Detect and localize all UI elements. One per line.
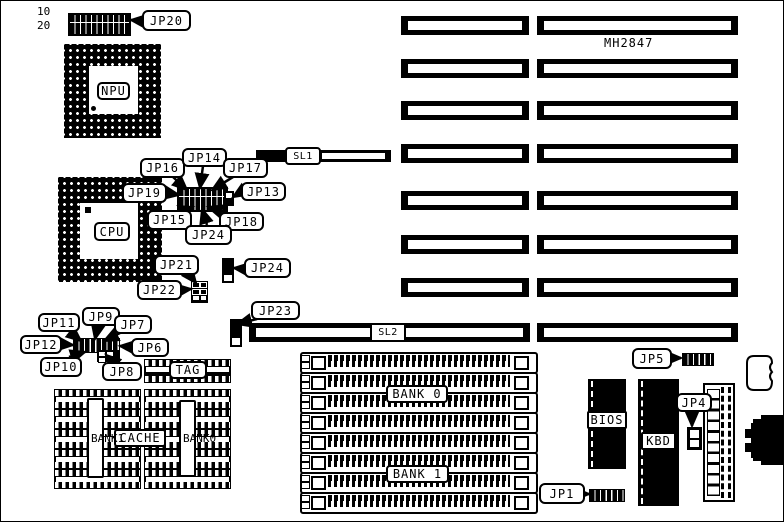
jumper-label-jp21: JP21	[154, 255, 199, 275]
jumper-label-jp10: JP10	[40, 357, 82, 377]
leader-jp11	[69, 331, 81, 341]
jumper-label-jp7: JP7	[114, 315, 152, 334]
kbd-chip-label: KBD	[641, 432, 676, 450]
sl2-label: SL2	[370, 323, 406, 342]
jumper-label-jp8: JP8	[102, 362, 142, 381]
npu-chip-label: NPU	[97, 82, 130, 100]
jumper-label-jp16: JP16	[140, 158, 185, 178]
leader-jp7	[104, 333, 120, 341]
jumper-label-jp13: JP13	[241, 182, 286, 201]
leader-jp17	[212, 177, 233, 190]
leader-jp6	[120, 346, 131, 347]
leader-jp9	[95, 325, 98, 339]
leader-jp22	[182, 289, 191, 290]
leader-jp8	[106, 355, 114, 362]
jumper-label-jp24-right: JP24	[244, 258, 291, 278]
jumper-label-jp6: JP6	[131, 338, 169, 357]
bank0-column-label: BANK0	[179, 400, 196, 477]
leader-jp20	[131, 20, 141, 21]
cpu-chip-label: CPU	[94, 222, 130, 241]
jp20-pin10-label: 10	[37, 5, 50, 18]
jumper-label-jp14: JP14	[182, 148, 227, 167]
leader-jp21	[189, 274, 196, 283]
jumper-label-jp5: JP5	[632, 348, 672, 369]
jumper-label-jp24-center: JP24	[185, 225, 232, 245]
bank1-column-label: BANK1	[87, 398, 104, 478]
tag-chip-label: TAG	[169, 361, 207, 379]
jumper-label-jp23: JP23	[251, 301, 300, 320]
board-model: MH2847	[604, 36, 653, 50]
jumper-label-jp17: JP17	[223, 158, 268, 178]
jumper-label-jp11: JP11	[38, 313, 80, 332]
jp20-pin20-label: 20	[37, 19, 50, 32]
simm-bank1-label: BANK 1	[386, 465, 449, 483]
simm-bank0-label: BANK 0	[386, 385, 448, 403]
leader-jp24-center	[202, 209, 207, 225]
jumper-label-jp20: JP20	[142, 10, 191, 31]
jumper-label-jp12: JP12	[20, 335, 62, 354]
leader-jp14	[200, 166, 203, 188]
leader-jp24-right	[234, 268, 244, 269]
jumper-label-jp4: JP4	[676, 393, 712, 412]
leader-jp19	[167, 193, 179, 195]
bios-chip-label: BIOS	[587, 411, 627, 429]
jumper-label-jp1: JP1	[539, 483, 585, 504]
leader-jp23	[237, 319, 257, 324]
leader-jp13	[233, 192, 241, 197]
motherboard-diagram: 10 20 NPU CPU SL1 MH2847	[0, 0, 784, 522]
jumper-label-jp22: JP22	[137, 280, 182, 300]
leader-jp12	[61, 344, 73, 345]
sl1-label: SL1	[285, 147, 321, 165]
leader-jp16	[173, 177, 187, 190]
jumper-label-jp19: JP19	[122, 183, 167, 203]
